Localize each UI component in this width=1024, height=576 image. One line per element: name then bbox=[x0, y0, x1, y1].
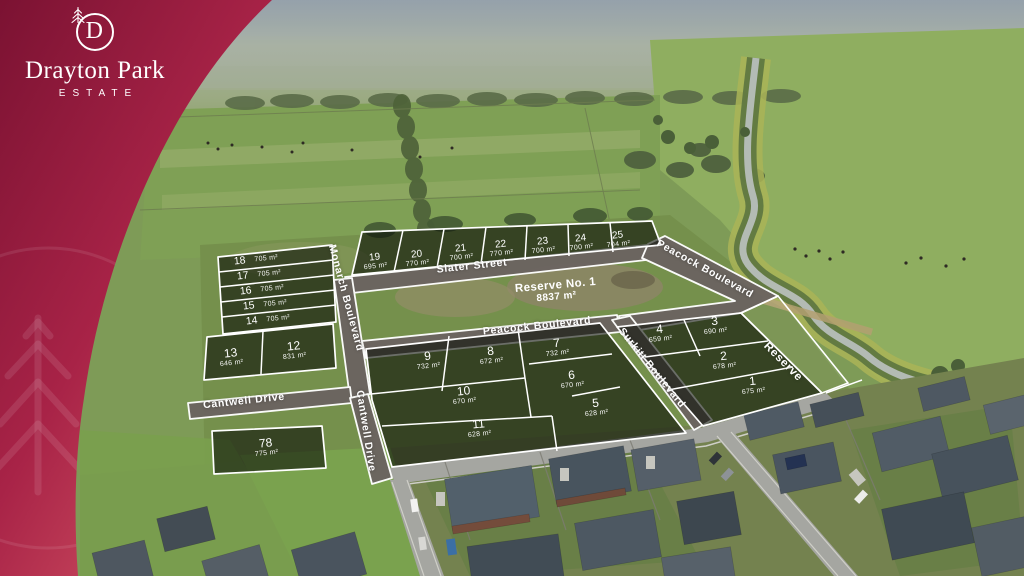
brand-logo: D Drayton Park ESTATE bbox=[4, 13, 186, 99]
brand-monogram: D bbox=[76, 13, 114, 51]
monogram-letter: D bbox=[86, 18, 103, 45]
brand-name: Drayton Park bbox=[4, 57, 186, 85]
pine-tree-icon bbox=[72, 6, 85, 25]
estate-masterplan-image: Reserve No. 1 8837 m² Slater StreetMonar… bbox=[0, 0, 1024, 576]
brand-subtitle: ESTATE bbox=[4, 88, 186, 99]
